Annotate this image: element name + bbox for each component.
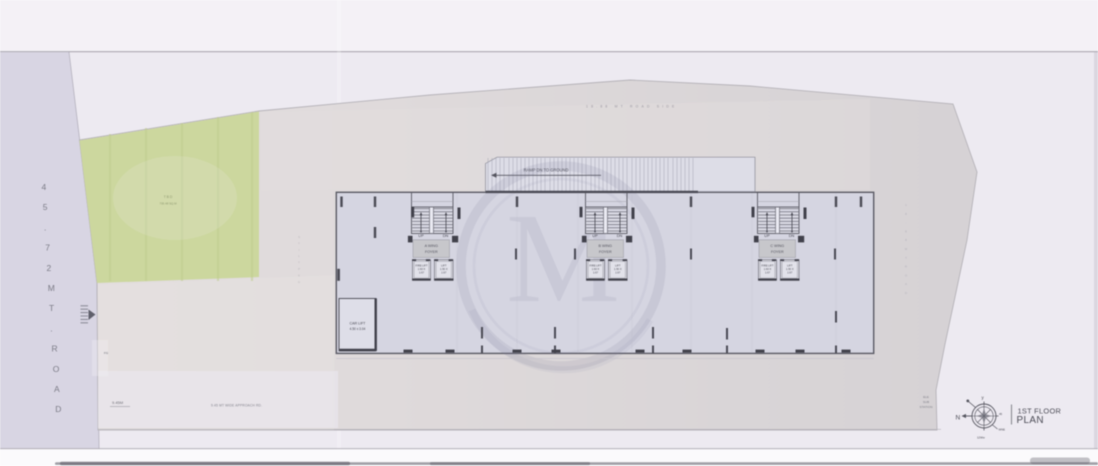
svg-text:18.88 MT ROAD SIDE: 18.88 MT ROAD SIDE (586, 105, 677, 109)
svg-text:WNE: WNE (999, 428, 1006, 432)
svg-text:CAR LIFT: CAR LIFT (350, 322, 367, 326)
svg-text:R: R (52, 344, 58, 354)
svg-text:1.67: 1.67 (441, 271, 447, 275)
svg-text:UP: UP (418, 233, 424, 238)
svg-text:B WING: B WING (599, 244, 613, 248)
svg-text:PLAN: PLAN (1017, 415, 1044, 426)
svg-text:O: O (53, 364, 60, 374)
svg-text:1.60 X: 1.60 X (764, 267, 772, 271)
svg-text:LIFT: LIFT (615, 263, 621, 267)
svg-text:4.50 x 3.04: 4.50 x 3.04 (350, 327, 366, 331)
svg-text:ELE: ELE (923, 395, 929, 399)
svg-text:K: K (298, 273, 300, 277)
svg-text:FG: FG (104, 351, 109, 355)
svg-text:T: T (298, 241, 300, 245)
svg-text:.: . (50, 323, 52, 333)
svg-text:2: 2 (47, 263, 52, 273)
svg-text:FIRE LIFT: FIRE LIFT (590, 263, 602, 267)
svg-text:C WING: C WING (770, 244, 784, 248)
svg-text:A: A (54, 384, 60, 394)
svg-text:UP: UP (592, 233, 598, 238)
svg-text:DN: DN (617, 233, 623, 238)
svg-text:FOYER: FOYER (599, 250, 612, 254)
svg-text:1ST FLOOR: 1ST FLOOR (1018, 407, 1062, 416)
svg-text:STATION: STATION (920, 405, 933, 409)
svg-text:FIRE LIFT: FIRE LIFT (762, 263, 774, 267)
svg-text:45: 45 (999, 412, 1003, 416)
svg-text:SUB: SUB (923, 400, 929, 404)
svg-text:S: S (298, 235, 300, 239)
svg-text:D: D (55, 404, 61, 414)
svg-text:T: T (49, 303, 54, 313)
svg-text:M: M (48, 283, 55, 293)
svg-text:T B D: T B D (164, 195, 173, 199)
svg-text:735.48 SQ.M: 735.48 SQ.M (159, 202, 177, 206)
svg-text:1.50 X: 1.50 X (786, 267, 794, 271)
svg-text:A WING: A WING (425, 244, 438, 248)
svg-text:A: A (905, 282, 907, 286)
svg-text:P: P (298, 267, 300, 271)
svg-text:LIFT: LIFT (787, 263, 793, 267)
svg-text:G: G (298, 280, 300, 284)
svg-text:1.60 X: 1.60 X (592, 267, 600, 271)
svg-text:1.50 X: 1.50 X (440, 267, 448, 271)
svg-text:4: 4 (42, 182, 47, 192)
svg-text:1.67: 1.67 (615, 271, 621, 275)
svg-text:12Ww: 12Ww (977, 436, 986, 440)
svg-text:FIRE LIFT: FIRE LIFT (416, 263, 428, 267)
svg-text:1.67: 1.67 (765, 271, 771, 275)
svg-text:1.60 X: 1.60 X (418, 267, 426, 271)
svg-text:7: 7 (45, 243, 50, 253)
svg-text:N: N (956, 415, 961, 422)
svg-text:T: T (298, 261, 300, 265)
svg-text:9.45 MT WIDE APPROACH RD.: 9.45 MT WIDE APPROACH RD. (211, 404, 262, 408)
svg-text:1.67: 1.67 (419, 271, 425, 275)
svg-text:T: T (905, 256, 907, 260)
svg-text:DN: DN (443, 233, 449, 238)
svg-text:9.45M: 9.45M (112, 400, 123, 405)
svg-text:1.67: 1.67 (593, 271, 599, 275)
svg-text:FOYER: FOYER (771, 250, 784, 254)
svg-text:1.50 X: 1.50 X (614, 267, 622, 271)
svg-text:UP: UP (764, 233, 770, 238)
svg-text:FOYER: FOYER (425, 250, 438, 254)
svg-text:LIFT: LIFT (441, 263, 447, 267)
svg-text:DN: DN (789, 233, 795, 238)
svg-text:.: . (44, 222, 46, 232)
svg-text:5: 5 (43, 202, 48, 212)
svg-text:1.67: 1.67 (787, 271, 793, 275)
